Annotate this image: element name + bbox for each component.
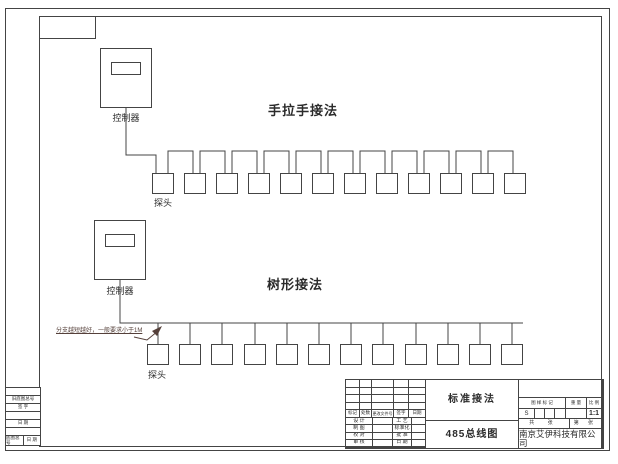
role-label-right: 工 艺 [393,418,411,424]
daisy-section-title: 手拉手接法 [268,100,338,119]
tree-section-title: 树形接法 [267,274,323,293]
probe-box [469,344,491,365]
rev-header-file: 更改文件号 [372,410,393,417]
probe-box [280,173,302,194]
side-block-row [6,388,40,395]
probe-box [216,173,238,194]
role-label-left: 审 核 [346,440,372,446]
roles-grid: 设 计工 艺制 图标准化校 对批 准审 核日 期 [346,418,425,448]
mark-sub-cell-2 [545,409,554,418]
rev-header-count: 处数 [360,410,371,417]
drawing-name-cell: 标准接法 [426,380,518,420]
corner-box [39,16,96,39]
tree-controller-screen [105,234,135,247]
probe-box [308,344,330,365]
rev-header-mark: 标记 [346,410,359,417]
probe-box [405,344,427,365]
probe-box [248,173,270,194]
probe-box [472,173,494,194]
tree-controller-label: 控制器 [94,284,146,297]
weight-value-cell [566,409,586,418]
revision-empty-cell [409,388,425,395]
mark-sub-cell-3 [555,409,565,418]
role-label-left: 制 图 [346,425,372,431]
rev-header-date: 日期 [409,410,425,417]
probe-box [437,344,459,365]
probe-box [372,344,394,365]
probe-box [376,173,398,194]
role-value-left [373,440,392,446]
probe-box [147,344,169,365]
rev-header-sign: 签字 [394,410,408,417]
probe-box [340,344,362,365]
revision-empty-cell [346,388,359,395]
role-label-left: 校 对 [346,433,372,439]
probe-box [276,344,298,365]
role-label-right: 标准化 [393,425,411,431]
role-label-left: 设 计 [346,418,372,424]
probe-box [504,173,526,194]
side-block-row: 签 字 [6,404,40,411]
revision-empty-cell [409,403,425,410]
probe-box [244,344,266,365]
revision-empty-cell [346,403,359,410]
company-cell: 南京艾伊科技有限公司 [519,429,601,448]
revision-empty-cell [360,403,371,410]
side-block-row: 旧底图总号 [6,396,40,403]
branch-annotation: 分支越短越好，一般要求小于1M [56,328,142,335]
daisy-controller-screen [111,62,141,75]
side-block-row [6,412,40,419]
side-bottom-right-cell: 日 期 [24,436,41,445]
revision-empty-cell [346,380,359,387]
revision-empty-cell [409,395,425,402]
role-value-right [412,433,425,439]
right-top-empty-cell [519,380,601,397]
mark-header-cell: 图 样 标 记 [519,398,565,408]
role-value-left [373,418,392,424]
probe-box [179,344,201,365]
revision-empty-cell [394,380,408,387]
side-block-row: 日 期 [6,420,40,427]
scale-value-cell: 1:1 [587,409,601,418]
revision-empty-cell [360,380,371,387]
daisy-controller-box [100,48,152,108]
title-block-right: 图 样 标 记 重 量 比 例 S 1:1 共 张 第 张 南京艾伊科技有限公司 [519,380,601,448]
revision-empty-cell [346,395,359,402]
sheet-page-cell: 第 张 [570,419,601,428]
mark-value-cell: S [519,409,534,418]
tree-controller-box [94,220,146,280]
probe-box [408,173,430,194]
title-block: 标记 处数 更改文件号 签字 日期 设 计工 艺制 图标准化校 对批 准审 核日… [345,379,604,449]
revision-empty-cell [394,395,408,402]
revision-empty-cell [372,395,393,402]
daisy-probe-label: 探头 [152,196,174,209]
weight-header-cell: 重 量 [566,398,586,408]
revision-empty-cell [360,395,371,402]
probe-box [152,173,174,194]
side-block-row [6,428,40,435]
revision-grid [346,380,425,409]
probe-box [184,173,206,194]
role-value-left [373,433,392,439]
revision-header-row: 标记 处数 更改文件号 签字 日期 [346,410,425,417]
title-block-middle: 标准接法 485总线图 [426,380,518,448]
probe-box [501,344,523,365]
probe-box [312,173,334,194]
role-value-right [412,425,425,431]
role-value-left [373,425,392,431]
revision-empty-cell [394,403,408,410]
revision-empty-cell [409,380,425,387]
title-block-left: 标记 处数 更改文件号 签字 日期 设 计工 艺制 图标准化校 对批 准审 核日… [346,380,425,448]
revision-empty-cell [394,388,408,395]
revision-empty-cell [360,388,371,395]
daisy-controller-label: 控制器 [100,111,152,124]
side-bottom-left-cell: 底图总号 [6,436,23,445]
sheet-total-cell: 共 张 [519,419,569,428]
revision-empty-cell [372,388,393,395]
role-label-right: 批 准 [393,433,411,439]
probe-box [211,344,233,365]
role-value-right [412,440,425,446]
drawing-number-cell: 485总线图 [426,421,518,448]
scale-header-cell: 比 例 [587,398,601,408]
side-block: 旧底图总号签 字日 期底图总号日 期 [5,387,41,446]
role-value-right [412,418,425,424]
revision-empty-cell [372,380,393,387]
revision-empty-cell [372,403,393,410]
drawing-sheet: 控制器 手拉手接法 探头 控制器 树形接法 探头 分支越短越好，一般要求小于1M… [0,0,618,464]
probe-box [440,173,462,194]
probe-box [344,173,366,194]
side-block-bottom-row: 底图总号日 期 [6,436,40,445]
tree-probe-label: 探头 [146,368,168,381]
mark-sub-cell-1 [535,409,544,418]
role-label-right: 日 期 [393,440,411,446]
